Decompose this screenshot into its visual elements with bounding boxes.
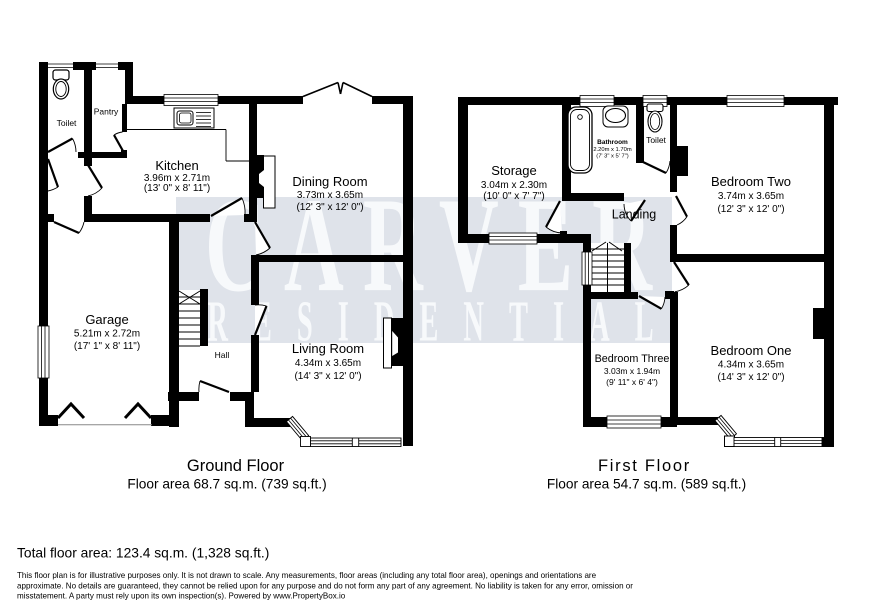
svg-text:4.34m x 3.65m: 4.34m x 3.65m [295,358,361,369]
svg-text:Hall: Hall [215,350,230,360]
svg-text:(14' 3" x 12' 0"): (14' 3" x 12' 0") [717,372,784,383]
svg-text:Kitchen: Kitchen [155,158,198,173]
svg-text:(13' 0" x 8' 11"): (13' 0" x 8' 11") [144,183,210,194]
svg-text:Total floor area: 123.4 sq.m.: Total floor area: 123.4 sq.m. (1,328 sq.… [17,546,269,561]
svg-text:approximate. No details are gu: approximate. No details are guaranteed, … [17,582,633,591]
svg-text:(12' 3" x 12' 0"): (12' 3" x 12' 0") [296,202,363,213]
svg-text:3.03m x 1.94m: 3.03m x 1.94m [604,366,660,376]
svg-text:This floor plan is for illustr: This floor plan is for illustrative purp… [17,571,597,580]
svg-text:2.20m x 1.70m: 2.20m x 1.70m [593,147,632,153]
svg-text:Toilet: Toilet [57,118,77,128]
svg-text:3.04m x 2.30m: 3.04m x 2.30m [481,180,547,191]
svg-text:Bedroom Three: Bedroom Three [595,353,670,365]
svg-text:Floor area 68.7 sq.m. (739 sq.: Floor area 68.7 sq.m. (739 sq.ft.) [127,477,326,492]
svg-text:Bathroom: Bathroom [597,139,628,146]
svg-text:(10' 0" x 7' 7"): (10' 0" x 7' 7") [483,191,545,202]
svg-text:(9' 11" x 6' 4"): (9' 11" x 6' 4") [606,377,658,387]
svg-text:Bedroom One: Bedroom One [711,343,792,358]
svg-text:3.73m x 3.65m: 3.73m x 3.65m [297,190,363,201]
svg-text:(7' 3" x 5' 7"): (7' 3" x 5' 7") [596,154,628,160]
svg-text:misstatement. A party must rel: misstatement. A party must rely upon its… [17,592,346,601]
svg-text:Garage: Garage [85,312,128,327]
svg-text:Landing: Landing [612,208,657,222]
svg-text:Storage: Storage [491,163,537,178]
svg-text:(17' 1" x 8' 11"): (17' 1" x 8' 11") [74,341,140,352]
svg-text:4.34m x 3.65m: 4.34m x 3.65m [718,360,784,371]
svg-text:Dining Room: Dining Room [292,174,367,189]
svg-text:Pantry: Pantry [94,107,119,117]
svg-text:Ground Floor: Ground Floor [187,457,285,475]
svg-text:First Floor: First Floor [598,457,691,475]
svg-text:3.74m x 3.65m: 3.74m x 3.65m [718,191,784,202]
svg-text:5.21m x 2.72m: 5.21m x 2.72m [74,329,140,340]
svg-text:Bedroom Two: Bedroom Two [711,174,791,189]
svg-text:(12' 3" x 12' 0"): (12' 3" x 12' 0") [717,204,784,215]
svg-text:Living Room: Living Room [292,341,364,356]
svg-text:(14' 3" x 12' 0"): (14' 3" x 12' 0") [294,371,361,382]
svg-text:Floor area 54.7 sq.m. (589 sq.: Floor area 54.7 sq.m. (589 sq.ft.) [547,477,746,492]
svg-text:Toilet: Toilet [646,135,666,145]
